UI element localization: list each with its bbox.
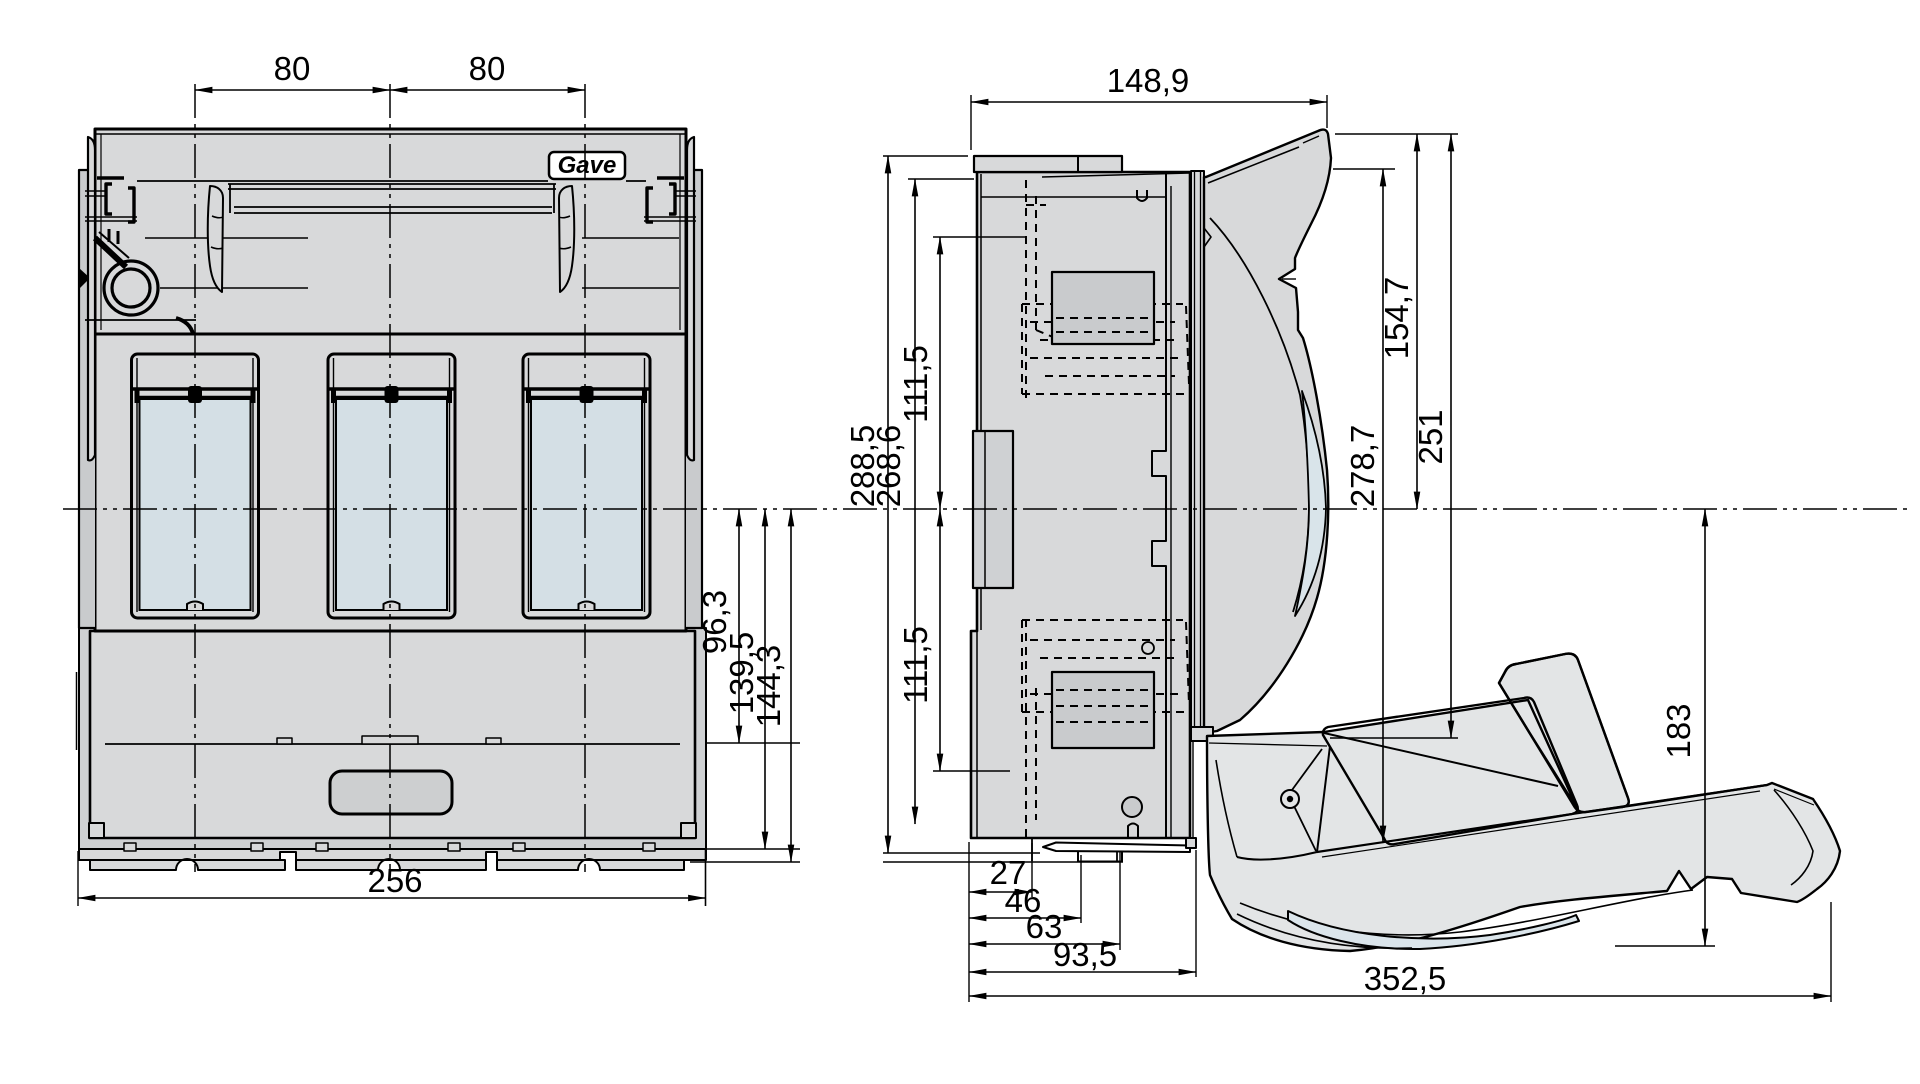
svg-text:183: 183 xyxy=(1660,703,1697,758)
svg-text:93,5: 93,5 xyxy=(1053,936,1117,973)
svg-text:Gave: Gave xyxy=(558,152,617,179)
svg-text:251: 251 xyxy=(1412,409,1449,464)
svg-text:256: 256 xyxy=(367,862,422,899)
svg-text:278,7: 278,7 xyxy=(1344,425,1381,508)
svg-text:111,5: 111,5 xyxy=(897,345,934,423)
svg-text:80: 80 xyxy=(469,50,506,87)
svg-text:80: 80 xyxy=(274,50,311,87)
svg-text:111,5: 111,5 xyxy=(897,626,934,704)
svg-text:268,6: 268,6 xyxy=(870,425,907,508)
svg-text:144,3: 144,3 xyxy=(750,645,787,728)
svg-text:352,5: 352,5 xyxy=(1364,960,1447,997)
svg-text:148,9: 148,9 xyxy=(1107,62,1190,99)
